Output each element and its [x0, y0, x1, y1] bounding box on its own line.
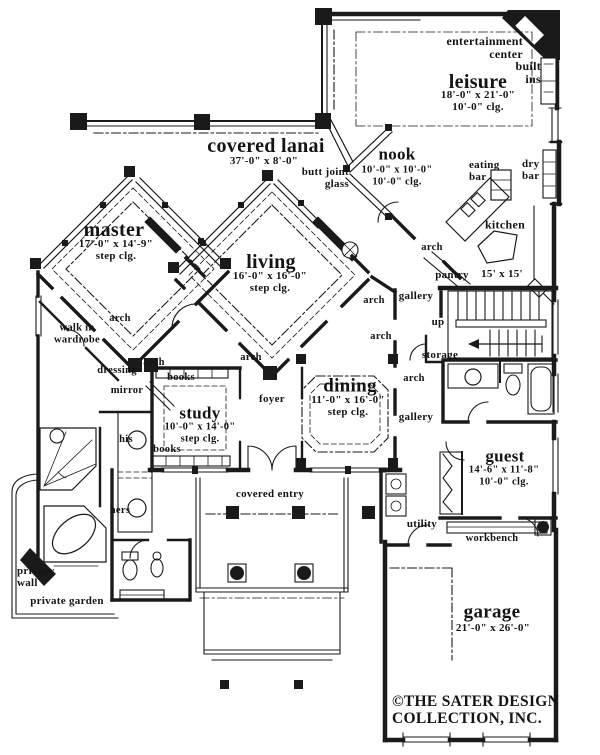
- label-built-ins: builtins: [515, 60, 541, 86]
- label-master-dims: 17'-0" x 14'-9"step clg.: [79, 238, 153, 262]
- label-leisure-dims: 18'-0" x 21'-0"10'-0" clg.: [441, 89, 515, 113]
- labels-layer: entertainmentcenterbuiltinsleisure18'-0"…: [0, 0, 600, 755]
- label-walk-in-wardrobe: walk inwardrobe: [54, 322, 100, 345]
- label-eating-bar: eatingbar: [469, 159, 500, 183]
- label-arch-study: arch: [143, 357, 164, 369]
- label-dining-dims: 11'-0" x 16'-0"step clg.: [311, 394, 385, 418]
- label-guest-dims: 14'-6" x 11'-8"10'-0" clg.: [469, 464, 539, 487]
- label-covered-lanai-title: covered lanai: [207, 135, 324, 157]
- label-arch-foyer: arch: [240, 352, 261, 364]
- label-kitchen: kitchen: [485, 218, 525, 231]
- label-covered-lanai-dim: 37'-0" x 8'-0": [230, 155, 298, 167]
- label-books-bottom: books: [153, 444, 181, 456]
- label-mirror: mirror: [111, 385, 144, 397]
- label-books-top: books: [167, 372, 195, 384]
- label-storage: storage: [422, 349, 458, 361]
- label-utility: utility: [407, 518, 437, 530]
- label-nook-dims: 10'-0" x 10'-0"10'-0" clg.: [362, 164, 433, 187]
- label-gallery-upper: gallery: [399, 290, 433, 302]
- label-kitchen-dim: 15' x 15': [481, 268, 523, 280]
- label-study-dims: 10'-0" x 14'-0"step clg.: [165, 421, 236, 444]
- label-gallery-lower: gallery: [399, 411, 433, 423]
- label-arch-gallery-upper: arch: [363, 295, 384, 307]
- label-living-dims: 16'-0" x 16'-0"step clg.: [233, 270, 307, 294]
- label-his: his: [119, 434, 133, 446]
- label-nook-title: nook: [378, 146, 415, 165]
- label-foyer: foyer: [259, 393, 285, 405]
- label-copyright: ©THE SATER DESIGNCOLLECTION, INC.: [392, 693, 559, 727]
- label-workbench: workbench: [466, 533, 519, 545]
- label-arch-gallery-mid: arch: [370, 331, 391, 343]
- label-arch-master: arch: [109, 313, 130, 325]
- label-pantry: pantry: [435, 269, 469, 281]
- label-dressing: dressing: [97, 365, 137, 377]
- label-arch-gallery-lower: arch: [403, 373, 424, 385]
- label-covered-entry: covered entry: [236, 488, 304, 500]
- label-entertainment-center: entertainmentcenter: [446, 35, 523, 61]
- label-dry-bar: drybar: [522, 158, 539, 182]
- floor-plan-sheet: entertainmentcenterbuiltinsleisure18'-0"…: [0, 0, 600, 755]
- label-private-garden: private garden: [30, 595, 104, 607]
- label-up: up: [432, 316, 445, 328]
- label-garage-title: garage: [464, 603, 521, 624]
- label-privacy-wall: privacywall: [17, 565, 55, 589]
- label-hers: hers: [110, 505, 130, 517]
- label-garage-dim: 21'-0" x 26'-0": [456, 622, 530, 634]
- label-butt-joint-glass: butt jointglass: [302, 166, 349, 190]
- label-arch-kitchen: arch: [421, 242, 442, 254]
